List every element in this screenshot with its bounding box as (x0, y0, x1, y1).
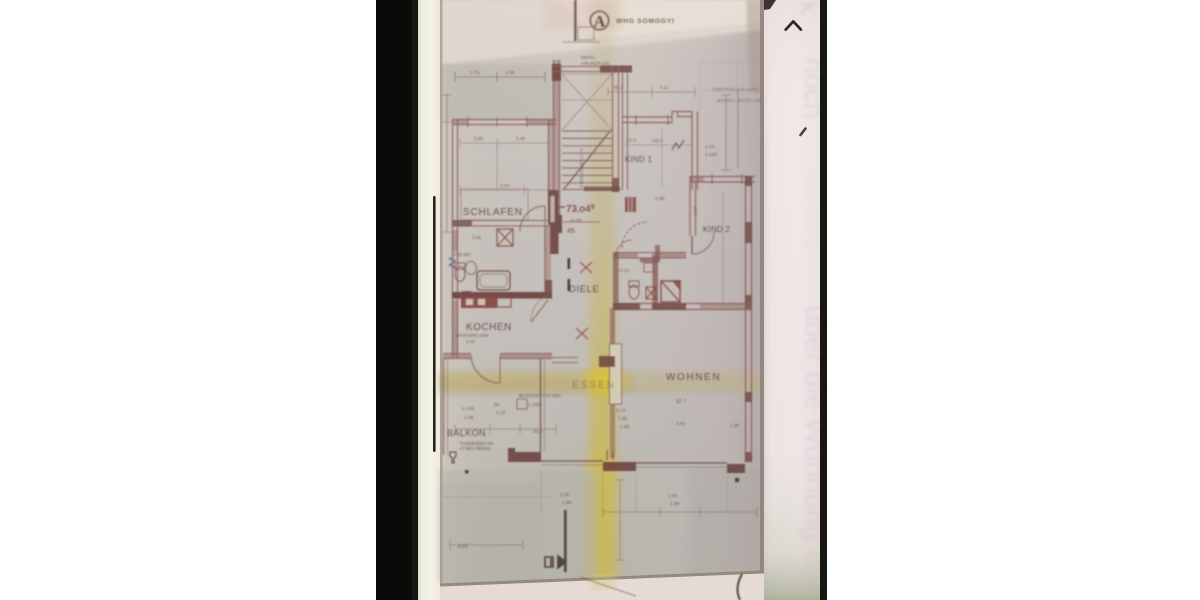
svg-text:BEPFL: BEPFL (581, 55, 596, 60)
svg-text:95.1: 95.1 (614, 85, 623, 90)
svg-text:WOHNFL NUTZFL M2: WOHNFL NUTZFL M2 (717, 98, 762, 103)
svg-text:4.07: 4.07 (693, 206, 698, 215)
svg-text:1.98: 1.98 (562, 500, 572, 506)
svg-text:SPARHERD ABW: SPARHERD ABW (455, 333, 488, 338)
svg-text:DIELE: DIELE (569, 284, 599, 295)
svg-text:k: k (795, 2, 822, 15)
svg-text:1.185: 1.185 (528, 402, 540, 408)
svg-text:GRUNDR.OG: GRUNDR.OG (581, 61, 610, 66)
svg-text:1.98: 1.98 (670, 501, 680, 507)
svg-text:BAD WC: BAD WC (452, 252, 472, 258)
svg-text:1.10: 1.10 (705, 144, 715, 150)
svg-text:2.43: 2.43 (466, 339, 475, 344)
svg-text:117.5: 117.5 (626, 138, 637, 143)
svg-text:ESSEN: ESSEN (572, 380, 616, 391)
svg-text:1.08: 1.08 (655, 196, 665, 202)
svg-text:52.7: 52.7 (676, 399, 686, 405)
svg-text:152.5: 152.5 (652, 138, 663, 143)
svg-text:3.44: 3.44 (500, 183, 509, 188)
svg-text:1.135: 1.135 (462, 406, 474, 412)
svg-text:WOHNEN: WOHNEN (666, 372, 721, 383)
svg-text:89: 89 (494, 402, 500, 408)
svg-text:1.98: 1.98 (620, 424, 630, 430)
svg-text:73,o49: 73,o49 (566, 204, 595, 215)
svg-text:1.75: 1.75 (470, 70, 480, 76)
svg-text:1.91: 1.91 (668, 493, 678, 499)
svg-text:A: A (594, 14, 606, 31)
svg-text:KIND 2: KIND 2 (703, 225, 730, 234)
svg-text:WHG SOMOGYI: WHG SOMOGYI (616, 18, 675, 25)
svg-text:93.8: 93.8 (533, 429, 543, 435)
svg-text:KOCHEN: KOCHEN (466, 322, 512, 333)
svg-text:45: 45 (567, 228, 575, 235)
svg-text:LT BES SIEDKG: LT BES SIEDKG (460, 446, 491, 451)
svg-text:6.74: 6.74 (616, 408, 626, 414)
svg-text:2.16: 2.16 (560, 492, 570, 498)
svg-text:2.10: 2.10 (496, 410, 506, 416)
svg-text:STEIGUNGEN 17.5: STEIGUNGEN 17.5 (579, 148, 584, 188)
svg-text:2.88: 2.88 (474, 136, 483, 141)
svg-text:2.11: 2.11 (660, 85, 669, 90)
svg-text:1.90: 1.90 (730, 423, 740, 429)
svg-text:1.46: 1.46 (516, 136, 525, 141)
svg-text:3.48: 3.48 (472, 235, 481, 240)
svg-text:SCHLAFEN: SCHLAFEN (463, 207, 523, 218)
svg-text:2.61: 2.61 (676, 421, 686, 427)
svg-text:1.08: 1.08 (505, 70, 515, 76)
svg-text:1.165: 1.165 (705, 152, 717, 158)
svg-text:TREPPENHAUS AUFG: TREPPENHAUS AUFG (712, 87, 759, 92)
svg-text:+3.15: +3.15 (617, 268, 629, 274)
svg-text:1.88: 1.88 (464, 415, 474, 421)
svg-text:BALKON: BALKON (447, 428, 486, 438)
svg-text:7.96: 7.96 (618, 416, 628, 422)
svg-text:KIND 1: KIND 1 (625, 155, 652, 164)
